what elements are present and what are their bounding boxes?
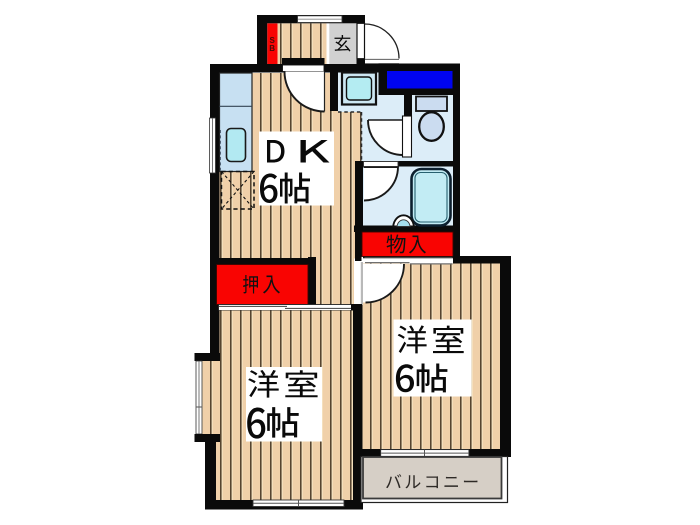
svg-text:B: B <box>269 44 275 53</box>
